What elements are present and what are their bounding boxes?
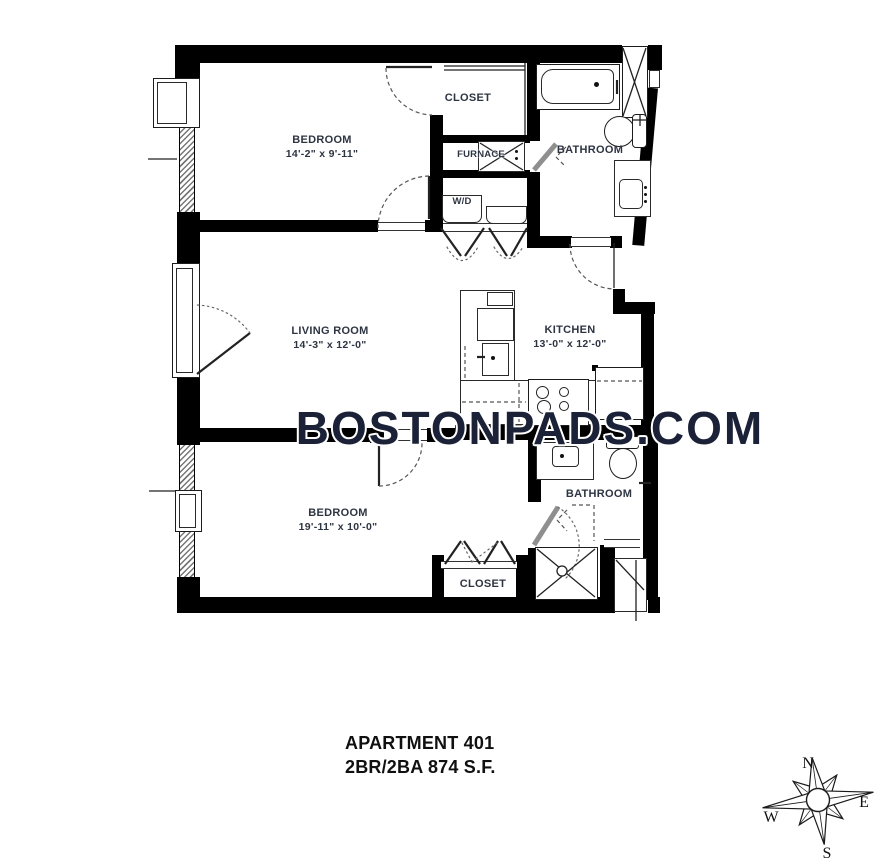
stove-burner-1 <box>536 386 549 399</box>
kitchen-sink-drain <box>491 356 495 360</box>
living-room-name: LIVING ROOM <box>291 324 368 338</box>
kitchen-cabinet-1 <box>487 292 513 306</box>
sill-wd <box>443 223 527 232</box>
bathroom1-label: BATHROOM <box>557 143 623 157</box>
apartment-title: APARTMENT 401 <box>345 731 496 755</box>
toilet1-tank <box>632 114 647 148</box>
shaft-bottom <box>614 558 647 612</box>
bathtub-drain <box>594 82 599 87</box>
window-bedroom2-sash <box>179 494 196 528</box>
bedroom1-label: BEDROOM 14'-2" x 9'-11" <box>286 133 359 161</box>
sill-closet2 <box>441 561 517 569</box>
bathtub-basin <box>541 69 614 104</box>
closet1-name: CLOSET <box>445 91 491 105</box>
compass-hub <box>805 787 831 813</box>
shaft-top <box>622 46 648 118</box>
kitchen-label: KITCHEN 13'-0" x 12'-0" <box>533 323 606 351</box>
bedroom2-label: BEDROOM 19'-11" x 10'-0" <box>299 506 378 534</box>
wall-left-b <box>177 212 200 268</box>
bedroom1-dims: 14'-2" x 9'-11" <box>286 147 359 161</box>
sill-bedroom1 <box>378 222 425 231</box>
kitchen-sink <box>482 343 509 376</box>
casement-window-swing <box>197 305 250 374</box>
sink1-faucet-dot1 <box>644 186 647 189</box>
living-room-dims: 14'-3" x 12'-0" <box>291 338 368 352</box>
closet2-label: CLOSET <box>460 577 506 591</box>
living-room-label: LIVING ROOM 14'-3" x 12'-0" <box>291 324 368 352</box>
wall-entry <box>527 236 572 248</box>
wall-shower-shaft <box>600 545 615 613</box>
bathroom1-name: BATHROOM <box>557 143 623 157</box>
compass-label-w: W <box>763 809 779 826</box>
wall-hatch-2 <box>179 445 195 492</box>
wd-bifold-doors <box>441 228 527 261</box>
kitchen-dims: 13'-0" x 12'-0" <box>533 337 606 351</box>
sink1-basin <box>619 179 643 209</box>
kitchen-cabinet-2 <box>477 308 514 341</box>
bathroom2-label: BATHROOM <box>566 487 632 501</box>
wall-entry-hinge <box>610 236 622 248</box>
compass-star <box>757 750 880 853</box>
compass-label-s: S <box>823 845 832 862</box>
kitchen-name: KITCHEN <box>533 323 606 337</box>
bedroom2-name: BEDROOM <box>299 506 378 520</box>
wall-hatch-3 <box>179 532 195 577</box>
closet2-rod <box>604 539 640 548</box>
bathroom2-name: BATHROOM <box>566 487 632 501</box>
wall-hatch-1 <box>179 128 195 212</box>
wd-label: W/D <box>452 195 471 209</box>
sill-entry <box>571 237 611 247</box>
entry-door <box>570 243 614 289</box>
compass-rose: N E S W <box>735 735 895 864</box>
furnace-grille-dot1 <box>515 150 518 153</box>
compass-label-e: E <box>859 794 869 811</box>
furnace-grille-dot2 <box>515 157 518 160</box>
wall-bedroom1-stub <box>425 220 443 232</box>
closet1-door <box>386 67 432 115</box>
watermark: BOSTONPADS.COM <box>296 401 764 455</box>
sink1-faucet-dot2 <box>644 193 647 196</box>
compass-labels: N E S W <box>763 755 868 862</box>
wall-bath1-left-lower <box>527 172 540 236</box>
compass-star-diagonal <box>793 775 843 825</box>
floor-plan: BEDROOM 14'-2" x 9'-11" CLOSET FURNACE W… <box>0 0 895 864</box>
furnace-name: FURNACE <box>457 148 505 162</box>
wall-topright-nub <box>648 45 662 70</box>
wall-bedroom1-bottom <box>200 220 378 232</box>
closet1-label: CLOSET <box>445 91 491 105</box>
title-block: APARTMENT 401 2BR/2BA 874 S.F. <box>345 731 496 779</box>
wd-name: W/D <box>452 195 471 209</box>
dryer-unit <box>486 206 527 224</box>
bedroom1-door <box>378 176 429 228</box>
closet2-name: CLOSET <box>460 577 506 591</box>
compass-label-n: N <box>802 755 814 772</box>
wall-top <box>175 45 622 63</box>
wall-left-a <box>175 45 200 80</box>
bedroom1-name: BEDROOM <box>286 133 359 147</box>
compass-star-cardinal <box>757 750 880 853</box>
apartment-subtitle: 2BR/2BA 874 S.F. <box>345 755 496 779</box>
topright-niche <box>649 70 660 88</box>
stove-burner-3 <box>559 387 569 397</box>
sink1-faucet-dot3 <box>644 200 647 203</box>
furnace-label: FURNACE <box>457 148 505 162</box>
window-living-sash <box>176 268 193 373</box>
window-bedroom1-sash <box>157 82 187 124</box>
shower <box>535 547 598 600</box>
bedroom2-dims: 19'-11" x 10'-0" <box>299 520 378 534</box>
